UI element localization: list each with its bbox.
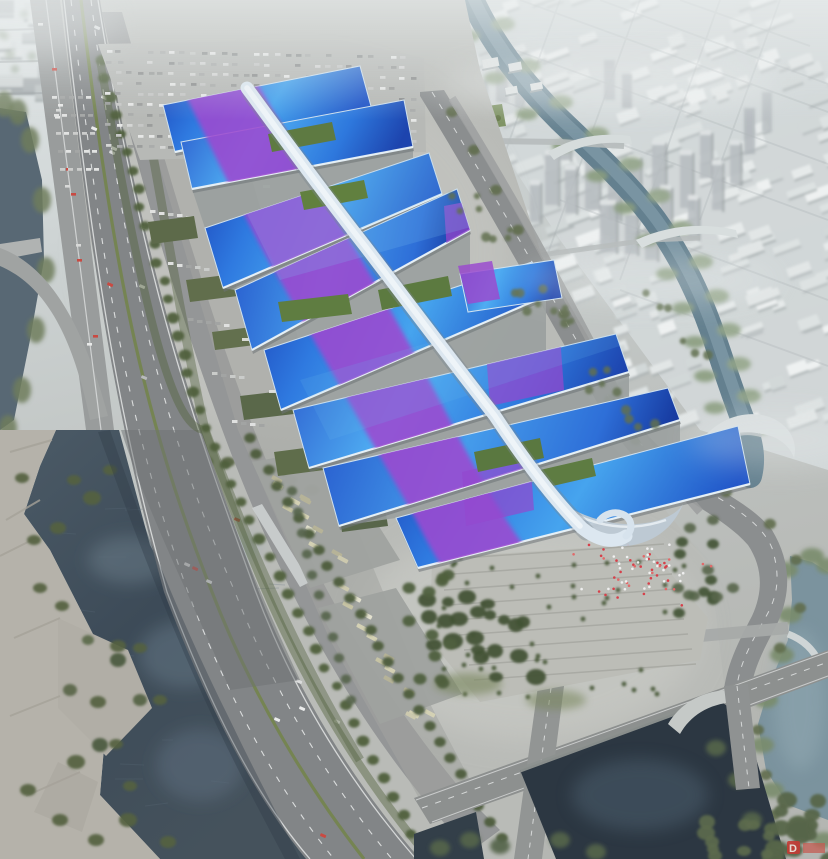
svg-text:D: D	[789, 843, 797, 855]
